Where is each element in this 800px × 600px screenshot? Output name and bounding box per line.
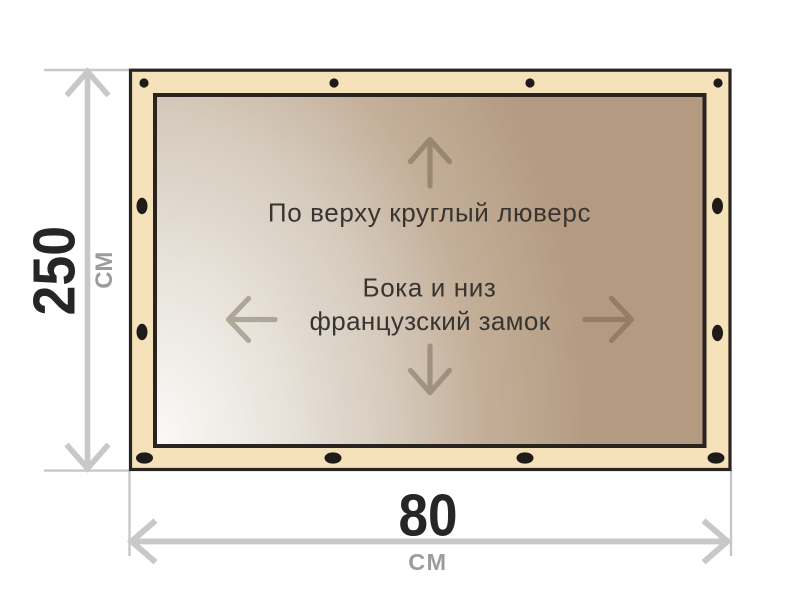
svg-text:французский замок: французский замок — [310, 306, 551, 336]
svg-text:Бока и низ: Бока и низ — [363, 273, 497, 303]
svg-text:80: 80 — [398, 482, 457, 548]
svg-text:250: 250 — [21, 226, 87, 316]
svg-text:СМ: СМ — [408, 549, 447, 575]
svg-text:По верху круглый люверс: По верху круглый люверс — [268, 198, 591, 228]
svg-text:СМ: СМ — [91, 252, 118, 289]
